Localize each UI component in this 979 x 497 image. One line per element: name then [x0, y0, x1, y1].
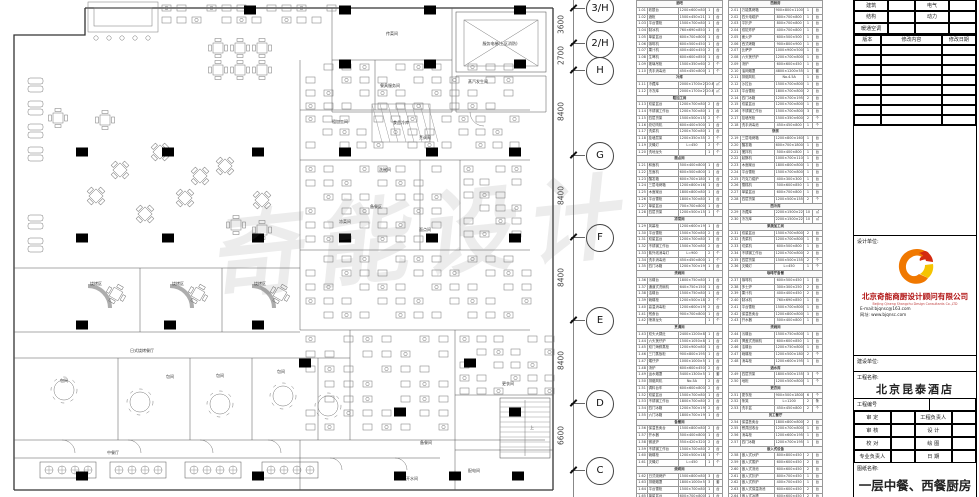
schedule-row: 1.49运水烟罩5400×1300×5501套	[637, 372, 723, 379]
grid-dimension-line	[573, 0, 574, 497]
signature-cell	[952, 424, 976, 437]
schedule-row: 2.64嵌入式冰槽600×600×4502台	[729, 493, 823, 497]
schedule-row: 1.08生啤机600×600×8501台	[637, 55, 723, 62]
structural-column	[244, 6, 256, 15]
revision-empty-cell	[942, 55, 976, 65]
schedule-row: 2.33切菜机600×500×8001台	[729, 244, 823, 251]
floor-plan: 奇能设计 传菜间餐具服务间服务电梯(上区消防)蒸汽发生间食品冷库粗加工间烹调间洗…	[0, 0, 556, 497]
room-label: 包间	[60, 379, 68, 383]
schedule-row: 粗加工间	[637, 95, 723, 102]
schedule-row: 1.04制冰机760×690×8501台	[637, 28, 723, 35]
schedule-row: 2.13平台雪柜1800×700×8002台	[729, 88, 823, 95]
schedule-row: 2.58嵌入式炒炉800×800×4502台	[729, 453, 823, 460]
schedule-row: 1.21和面机500×400×8001台	[637, 163, 723, 170]
room-label: 服务电梯(上区消防)	[482, 42, 517, 46]
revision-empty-cell	[881, 75, 942, 85]
grid-bubble-G: G	[586, 142, 614, 170]
schedule-row: 1.59不锈钢工作台1500×700×8002台	[637, 446, 723, 453]
schedule-row: 1.60碗碟柜1200×500×18001个	[637, 453, 723, 460]
schedule-row: 1.38洁碟台1500×750×8001台	[637, 291, 723, 298]
signature-cell: 设 计	[915, 424, 952, 437]
schedule-row: 2.20醒发箱600×700×18001台	[729, 142, 823, 149]
dimension-label: 8400	[557, 174, 566, 218]
schedule-row: 2.08六头煲仔炉1200×700×8001台	[729, 55, 823, 62]
structural-column	[394, 408, 406, 417]
schedule-row: 2.54保温售卖台1800×800×8002台	[729, 419, 823, 426]
schedule-row: 2.01万能蒸烤箱900×800×11001台	[729, 7, 823, 14]
schedule-row: 1.30平台雪柜1500×700×8002台	[637, 230, 723, 237]
structural-column	[76, 234, 88, 243]
title-block-cell	[949, 11, 976, 22]
schedule-row: 1.50排烟风机No.5A2台	[637, 379, 723, 386]
schedule-row: 2.45揭盖式洗碗机600×600×8501台	[729, 338, 823, 345]
structural-column	[449, 472, 461, 481]
structural-column	[424, 60, 436, 69]
signature-cell	[952, 437, 976, 450]
schedule-row: 1.43双头大锅灶2400×1200×8001台	[637, 331, 723, 338]
room-label: 包间	[216, 374, 224, 378]
title-block-cell: 电气	[915, 0, 949, 11]
schedule-row: 酒吧	[637, 1, 723, 8]
schedule-row: 2.09汤炉600×600×4501台	[729, 61, 823, 68]
schedule-row: 2.37咖啡机600×500×4501台	[729, 277, 823, 284]
room-label: 面点间	[419, 228, 431, 232]
signature-cell	[891, 437, 915, 450]
revision-empty-cell	[881, 115, 942, 125]
signature-cell	[952, 411, 976, 424]
schedule-row: 1.58微波炉550×420×3202台	[637, 439, 723, 446]
schedule-row: 2.51更衣柜900×500×18006个	[729, 392, 823, 399]
schedule-row: 2.40制冰机760×690×8501台	[729, 298, 823, 305]
revision-empty-cell	[854, 75, 881, 85]
schedule-row: 1.07果汁机400×400×4502台	[637, 48, 723, 55]
dimension-label: 8400	[557, 256, 566, 300]
revision-empty-cell	[881, 95, 942, 105]
structural-column	[509, 148, 521, 157]
signature-cell: 审 核	[854, 424, 891, 437]
schedule-row: 1.61灭蝇灯L=4501个	[637, 460, 723, 467]
schedule-row: 1.14不锈钢工作台1200×700×8001台	[637, 109, 723, 116]
schedule-row: 2.17挂墙吊柜1500×350×6002个	[729, 115, 823, 122]
revision-empty-cell	[942, 85, 976, 95]
schedule-row: 2.59嵌入式蒸炉600×600×4502台	[729, 460, 823, 467]
structural-column	[426, 234, 438, 243]
signature-table: 审 定工程负责人审 核设 计校 对绘 图专业负责人日 期	[854, 410, 976, 462]
room-label: 备餐区	[370, 205, 382, 209]
schedule-row: 2.16不锈钢工作台1500×700×8003台	[729, 109, 823, 116]
revision-empty-cell	[942, 95, 976, 105]
schedule-row: 2.38多士炉300×300×2502台	[729, 284, 823, 291]
floor-plan-linework	[0, 0, 556, 497]
structural-column	[299, 359, 311, 368]
revision-empty-cell	[881, 65, 942, 75]
schedule-row: 2.52条凳L=12002条	[729, 399, 823, 406]
schedule-row: 1.44六头煲仔炉1500×1050×8001台	[637, 338, 723, 345]
schedule-row: 1.34洗手消毒池450×450×8001个	[637, 257, 723, 264]
grid-bubble-2-H: 2/H	[586, 30, 614, 58]
schedule-row: 2.25巧克力熔炉400×300×3001台	[729, 176, 823, 183]
schedule-row: 洗碗间	[637, 271, 723, 278]
structural-column	[339, 6, 351, 15]
schedule-row: 1.46三门蒸饭柜900×800×19501台	[637, 352, 723, 359]
schedule-row: 2.12沙拉台1500×700×8001台	[729, 82, 823, 89]
room-label: 上	[530, 426, 534, 430]
schedule-row: 2.03平扒炉800×700×8001台	[729, 21, 823, 28]
revision-empty-cell	[854, 95, 881, 105]
schedule-row: 2.62嵌入式炸炉400×700×4501台	[729, 480, 823, 487]
schedule-row: 2.56消毒柜1200×600×19501台	[729, 433, 823, 440]
room-label: 蒸汽发生间	[468, 80, 488, 84]
structural-column	[162, 148, 174, 157]
schedule-row: 2.61嵌入式扒炉800×700×4501台	[729, 473, 823, 480]
title-block-cell	[949, 23, 976, 34]
structural-column	[464, 359, 476, 368]
schedule-row: 饼房	[729, 129, 823, 136]
structural-column	[252, 321, 264, 330]
title-block-cell	[915, 23, 949, 34]
room-label: 烧烤区	[90, 282, 102, 286]
revision-table-header: 版本修改内容修改日期	[854, 34, 976, 45]
project-section: 工程名称: 北京昆泰酒店	[854, 371, 976, 398]
schedule-row: 1.28四层货架1200×500×15501个	[637, 210, 723, 217]
schedule-row: 2.53洗手盆450×450×8002个	[729, 406, 823, 413]
schedule-row: 1.03平台雪柜1500×700×8001台	[637, 21, 723, 28]
company-website: 网址: www.bjqnsc.com	[860, 312, 976, 318]
schedule-row: 1.15四层货架1500×500×15502个	[637, 115, 723, 122]
client-label: 建设单位:	[854, 356, 976, 365]
schedule-row: 1.01收银台1200×600×8001台	[637, 7, 723, 14]
revision-empty-cell	[881, 55, 942, 65]
grid-bubble-H: H	[586, 57, 614, 85]
schedule-row: 1.55六门冰箱1800×700×19501台	[637, 412, 723, 419]
structural-column	[514, 60, 526, 69]
company-name: 北京奇能商厨设计顾问有限公司	[854, 291, 976, 302]
schedule-row: 备餐间	[637, 419, 723, 426]
schedule-row: 1.40高温消毒柜1200×600×19502台	[637, 304, 723, 311]
revision-empty-cell	[881, 85, 942, 95]
revision-empty-cell	[854, 45, 881, 55]
schedule-row: 1.29风幕柜1200×600×19501台	[637, 223, 723, 230]
structural-column	[426, 148, 438, 157]
structural-column	[252, 472, 264, 481]
schedule-row: 1.45双门海鲜蒸柜1200×900×8001台	[637, 345, 723, 352]
structural-column	[164, 321, 176, 330]
revision-empty-cell	[942, 65, 976, 75]
revision-header-cell: 版本	[854, 35, 881, 45]
structural-column	[394, 472, 406, 481]
drawing-title: 一层中餐、西餐厨房	[854, 475, 976, 494]
signature-cell: 工程负责人	[915, 411, 952, 424]
schedule-row: 2.05面火炉600×500×5001台	[729, 34, 823, 41]
schedule-row: 冷库	[637, 75, 723, 82]
structural-column	[514, 6, 526, 15]
schedule-row: 2.42保温售卖台1200×800×8001台	[729, 311, 823, 318]
schedule-row: 2.06西式烤箱900×800×9001台	[729, 41, 823, 48]
grid-bubble-C: C	[586, 457, 614, 485]
schedule-row: 1.26平台雪柜1800×700×8001台	[637, 196, 723, 203]
schedule-row: 1.31双星盆台1200×700×8001台	[637, 237, 723, 244]
grid-line-column: 3/H2/HHGFEDC3600270084008400840084006600	[555, 0, 630, 497]
revision-empty-cell	[942, 105, 976, 115]
schedule-row: 2.14四门冰箱1200×700×19502台	[729, 95, 823, 102]
schedule-row: 2.35四层货架1500×500×15502个	[729, 257, 823, 264]
title-block-cell: 动力	[915, 11, 949, 22]
schedule-row: 2.22起酥机1000×700×11001台	[729, 156, 823, 163]
schedule-row: 1.53不锈钢工作台1800×700×8002台	[637, 399, 723, 406]
schedule-row: 2.43开水器500×400×8001台	[729, 318, 823, 325]
schedule-row: 2.23木面案台1800×800×8001台	[729, 163, 823, 170]
company-logo	[854, 245, 976, 291]
revision-empty-cell	[854, 105, 881, 115]
grid-bubble-E: E	[586, 307, 614, 335]
structural-column	[76, 472, 88, 481]
revision-header-cell: 修改日期	[942, 35, 976, 45]
schedule-row: 2.29冷藏库2200×1500×220010㎡	[729, 210, 823, 217]
structural-column	[76, 321, 88, 330]
schedule-row: 2.49四层货架1800×500×15503个	[729, 372, 823, 379]
schedule-row: 1.63排烟烟罩1800×1000×5503套	[637, 480, 723, 487]
design-unit-section: 设计单位: 北京奇能商厨设计顾问有限公司 Beijing Qineng Shan…	[854, 235, 976, 355]
dimension-label: 6600	[557, 414, 566, 458]
project-number-value	[930, 399, 976, 410]
schedule-row: 西厨房	[729, 1, 823, 8]
title-block-cell	[888, 0, 915, 11]
schedule-row: 2.31双星盆台1500×700×8002台	[729, 230, 823, 237]
revision-header-cell: 修改内容	[881, 35, 942, 45]
dimension-label: 8400	[557, 339, 566, 383]
schedule-row: 1.37通道式洗碗机640×750×15001台	[637, 284, 723, 291]
schedule-row: 1.33紫外线消毒灯L=9002个	[637, 250, 723, 257]
structural-column	[339, 60, 351, 69]
structural-column	[509, 234, 521, 243]
schedule-row: 2.24平台雪柜1500×700×8001台	[729, 169, 823, 176]
schedule-row: 1.64平台雪柜1500×700×8001台	[637, 487, 723, 494]
schedule-row: 2.63嵌入式保温汤池600×600×4502台	[729, 487, 823, 494]
revision-empty-cell	[942, 75, 976, 85]
schedule-row: 1.57开水器500×400×8001台	[637, 433, 723, 440]
schedule-row: 员工餐厅	[729, 412, 823, 419]
schedule-row: 2.26雪糕机500×600×8501台	[729, 183, 823, 190]
schedule-row: 2.48消毒柜1200×600×19501台	[729, 358, 823, 365]
schedule-row: 1.17洗菜机1200×700×8001台	[637, 129, 723, 136]
revision-empty-cell	[854, 85, 881, 95]
schedule-row: 2.41平台雪柜1500×700×8001台	[729, 304, 823, 311]
schedule-row: 1.56保温售卖台1500×800×8002台	[637, 426, 723, 433]
schedule-row: 1.35四门冰箱1200×700×19501台	[637, 264, 723, 271]
room-label: 粗加工间	[332, 120, 348, 124]
schedule-row: 2.02四头电磁炉800×700×8001台	[729, 14, 823, 21]
schedule-row: 2.55餐具回收台1200×700×8001台	[729, 426, 823, 433]
signature-cell	[891, 411, 915, 424]
schedule-row: 1.62日式烧烤炉1500×800×8003台	[637, 473, 723, 480]
schedule-row: 1.47矮仔炉1000×1000×5001台	[637, 358, 723, 365]
room-label: 备餐间	[420, 441, 432, 445]
structural-column	[339, 148, 351, 157]
schedule-row: 2.27单星盆台600×700×8001台	[729, 190, 823, 197]
schedule-row: 1.10洗手消毒池450×450×8001个	[637, 68, 723, 75]
structural-column	[252, 148, 264, 157]
room-label: 烧烤区	[254, 282, 266, 286]
schedule-row: 1.20洗地龙头1个	[637, 149, 723, 156]
schedule-row: 2.04双缸炸炉400×700×8001台	[729, 28, 823, 35]
schedule-row: 1.19灭蝇灯L=4502个	[637, 142, 723, 149]
schedule-row: 2.30冷冻库2200×1500×220010㎡	[729, 217, 823, 224]
project-number-row: 工程编号	[854, 398, 976, 410]
schedule-row: 2.44污碟台1500×750×8001台	[729, 331, 823, 338]
room-label: 洗碗间	[379, 168, 391, 172]
schedule-row: 1.13双星盆台1200×700×8002台	[637, 102, 723, 109]
schedule-row: 1.36污碟台1800×750×8001台	[637, 277, 723, 284]
schedule-row: 2.47碗碟柜1200×500×18002个	[729, 352, 823, 359]
schedule-row: 1.48汤炉600×600×4502台	[637, 365, 723, 372]
revision-empty-cell	[881, 105, 942, 115]
schedule-row: 1.42喷淋龙头1个	[637, 318, 723, 325]
schedule-row: 2.07比萨炉1000×900×5001台	[729, 48, 823, 55]
structural-column	[512, 472, 524, 481]
signature-cell: 审 定	[854, 411, 891, 424]
room-label: 开水间	[406, 477, 418, 481]
schedule-row: 1.24三层电烤箱1200×800×16001台	[637, 183, 723, 190]
room-label: 包间	[277, 370, 285, 374]
schedule-row: 2.11排烟风机No.4.5A1台	[729, 75, 823, 82]
schedule-row: 2.57四门冰箱1200×700×19501台	[729, 439, 823, 446]
dragon-logo-icon	[892, 245, 938, 291]
schedule-row: 1.65单星盆台600×700×8001台	[637, 493, 723, 497]
revision-empty-cell	[854, 65, 881, 75]
equipment-schedule-table-a: 酒吧1.01收银台1200×600×8001台1.02酒柜1500×450×21…	[636, 0, 723, 497]
schedule-row: 1.23醒发箱600×700×18001台	[637, 176, 723, 183]
schedule-row: 1.06咖啡机600×500×4501台	[637, 41, 723, 48]
grid-bubble-3-H: 3/H	[586, 0, 614, 23]
structural-column	[162, 234, 174, 243]
schedule-row: 2.50地柜1200×500×8001个	[729, 379, 823, 386]
schedule-row: 2.34不锈钢工作台1200×700×8002台	[729, 250, 823, 257]
schedule-row: 2.36灭蝇灯L=4501个	[729, 264, 823, 271]
schedule-row: 2.18洗手消毒池450×450×8001个	[729, 122, 823, 129]
schedule-row: 1.41残食台900×700×8001台	[637, 311, 723, 318]
structural-column	[76, 148, 88, 157]
schedule-row: 1.54四门冰箱1200×700×19502台	[637, 406, 723, 413]
schedule-row: 1.25木面案台1800×800×8001台	[637, 190, 723, 197]
revision-table-rows	[854, 45, 976, 125]
schedule-row: 烹调间	[637, 325, 723, 332]
title-block-cell	[888, 23, 915, 34]
signature-cell	[891, 424, 915, 437]
structural-column	[509, 408, 521, 417]
structural-column	[252, 234, 264, 243]
structural-column	[339, 234, 351, 243]
schedule-row: 2.60嵌入式汤池600×600×4502台	[729, 466, 823, 473]
schedule-row: 1.11冷藏库2000×1700×220020.6㎡	[637, 82, 723, 89]
schedule-row: 2.15双星盆台1200×700×8001台	[729, 102, 823, 109]
schedule-row: 1.51调料台车600×600×8002台	[637, 385, 723, 392]
dimension-label: 8400	[557, 90, 566, 134]
schedule-row: 面点间	[637, 156, 723, 163]
room-label: 传菜间	[386, 32, 398, 36]
room-label: 更衣间	[502, 382, 514, 386]
schedule-row: 更衣间	[729, 385, 823, 392]
discipline-signoff-table: 建筑电气结构动力暖通空调	[854, 0, 976, 34]
project-name: 北京昆泰酒店	[854, 381, 976, 397]
schedule-row: 西冷库	[729, 203, 823, 210]
room-label: 包间	[166, 375, 174, 379]
grid-bubble-D: D	[586, 390, 614, 418]
equipment-schedule-table-b: 西厨房2.01万能蒸烤箱900×800×11001台2.02四头电磁炉800×7…	[728, 0, 823, 497]
signature-cell: 绘 图	[915, 437, 952, 450]
revision-empty-cell	[942, 115, 976, 125]
schedule-row: 1.05单星盆台600×700×8001台	[637, 34, 723, 41]
room-label: 烹调间	[419, 136, 431, 140]
schedule-row: 嵌入式设备	[729, 446, 823, 453]
room-label: 凉菜间	[339, 220, 351, 224]
schedule-row: 1.52双星盆台1500×700×8001台	[637, 392, 723, 399]
project-name-label: 工程名称:	[854, 372, 976, 381]
title-block-cell	[888, 11, 915, 22]
grid-bubble-F: F	[586, 224, 614, 252]
title-block-cell: 结构	[854, 11, 888, 22]
schedule-row: 1.32不锈钢工作台1500×700×8002台	[637, 244, 723, 251]
schedule-row: 2.46洁碟台1200×750×8001台	[729, 345, 823, 352]
schedule-row: 2.19三层电烤箱1200×800×16001台	[729, 136, 823, 143]
schedule-row: 1.16绞切肉机600×400×5001台	[637, 122, 723, 129]
schedule-row: 咖啡厅备餐	[729, 271, 823, 278]
schedule-row: 2.21搅拌机500×400×8001台	[729, 149, 823, 156]
room-label: 中餐厅	[107, 451, 119, 455]
room-label: 食品冷库	[393, 121, 409, 125]
schedule-row: 酒水库	[729, 365, 823, 372]
project-number-label: 工程编号	[854, 399, 930, 410]
schedule-row: 1.39碗碟柜1200×500×18002个	[637, 298, 723, 305]
schedule-row: 1.22压面机600×500×8001台	[637, 169, 723, 176]
schedule-row: 1.27单星盆台700×700×8001台	[637, 203, 723, 210]
title-block-cell: 暖通空调	[854, 23, 888, 34]
schedule-row: 凉菜间	[637, 217, 723, 224]
schedule-row: 烧烤间	[637, 466, 723, 473]
design-unit-label: 设计单位:	[854, 236, 976, 245]
schedule-row: 1.09玻璃吊柜1500×350×6002个	[637, 61, 723, 68]
revision-empty-cell	[942, 45, 976, 55]
room-label: 日式烧烤餐厅	[130, 349, 154, 353]
schedule-row: 1.12冷冻库2000×1700×220020.6㎡	[637, 88, 723, 95]
title-block-spacer	[854, 125, 976, 235]
title-block: 建筑电气结构动力暖通空调 版本修改内容修改日期 设计单位: 北京奇能商厨设计顾问…	[853, 0, 977, 497]
schedule-row: 洗碗间	[729, 325, 823, 332]
revision-empty-cell	[854, 55, 881, 65]
revision-empty-cell	[881, 45, 942, 55]
structural-column	[424, 6, 436, 15]
dimension-label: 2700	[557, 34, 566, 78]
revision-empty-cell	[854, 115, 881, 125]
drawing-title-label: 图纸名称:	[854, 463, 976, 472]
title-block-cell: 建筑	[854, 0, 888, 11]
schedule-row: 果蔬加工间	[729, 223, 823, 230]
title-block-cell	[949, 0, 976, 11]
client-section: 建设单位:	[854, 355, 976, 371]
drawing-title-section: 图纸名称: 一层中餐、西餐厨房	[854, 462, 976, 497]
room-label: 餐具服务间	[380, 84, 400, 88]
signature-cell: 校 对	[854, 437, 891, 450]
schedule-row: 2.39果汁机400×400×4502台	[729, 291, 823, 298]
schedule-row: 1.02酒柜1500×450×21001台	[637, 14, 723, 21]
room-label: 配电间	[468, 469, 480, 473]
schedule-row: 2.10油网烟罩4800×1200×5501套	[729, 68, 823, 75]
room-label: 烧烤区	[172, 282, 184, 286]
schedule-row: 2.28四层货架1200×500×15502个	[729, 196, 823, 203]
schedule-row: 2.32洗菜机1200×700×8001台	[729, 237, 823, 244]
schedule-row: 1.18挂墙层架1200×350×3502个	[637, 136, 723, 143]
